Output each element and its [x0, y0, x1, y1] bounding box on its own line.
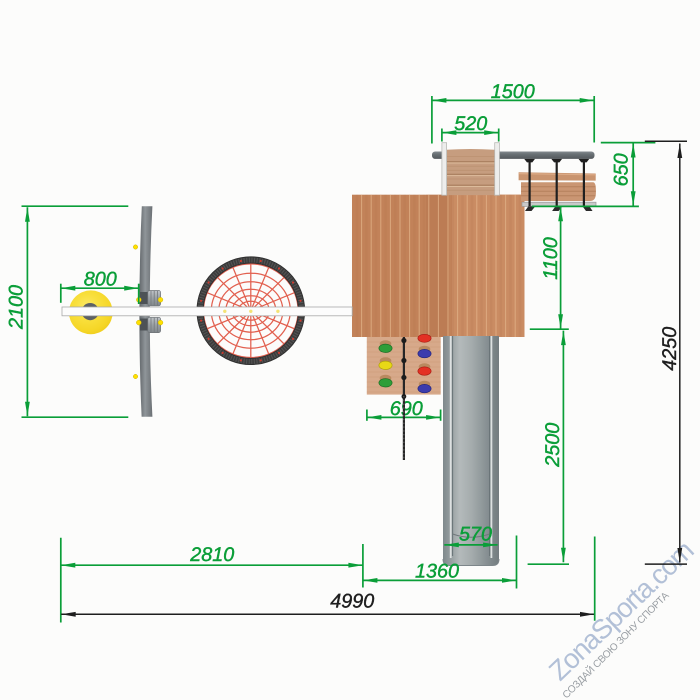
svg-text:2100: 2100: [6, 285, 28, 330]
svg-text:650: 650: [610, 153, 632, 186]
svg-text:1360: 1360: [415, 560, 459, 582]
svg-text:2810: 2810: [189, 544, 234, 566]
svg-text:690: 690: [390, 398, 423, 420]
svg-text:520: 520: [454, 113, 487, 135]
svg-text:800: 800: [84, 268, 117, 290]
svg-text:1100: 1100: [540, 237, 562, 280]
svg-text:4990: 4990: [330, 591, 374, 613]
svg-text:1500: 1500: [491, 81, 535, 103]
svg-text:4250: 4250: [659, 327, 681, 371]
svg-text:2500: 2500: [542, 423, 564, 468]
svg-text:570: 570: [459, 524, 492, 546]
